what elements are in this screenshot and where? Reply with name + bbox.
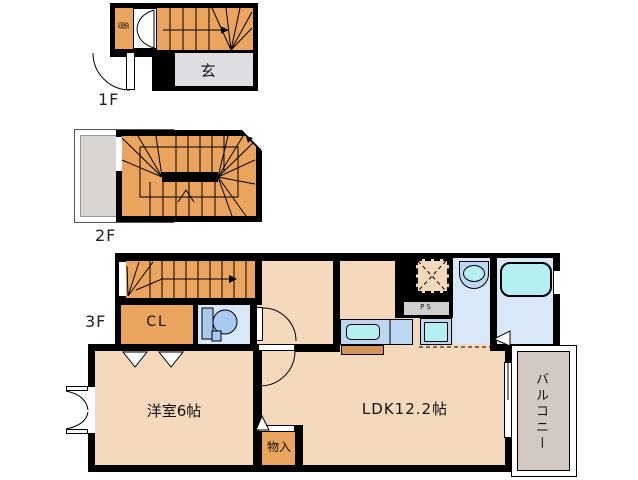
bifold-door-icon	[133, 8, 157, 49]
western-room-label: 洋室6帖	[95, 400, 253, 421]
casement-arcs-icon	[66, 391, 88, 429]
window-stairs-3f-icon	[119, 262, 126, 296]
ldk-door-leaf-icon	[258, 344, 295, 351]
washbasin-bowl-icon	[463, 265, 485, 282]
hall-upper	[262, 261, 333, 305]
pipe-space-label: PS	[404, 303, 449, 311]
bathtub-icon	[500, 262, 552, 297]
window-western-icon	[88, 387, 95, 433]
washer-icon	[424, 322, 448, 342]
casement-leaf-top-icon	[66, 386, 88, 391]
casement-leaf-bottom-icon	[66, 429, 88, 434]
toilet-room	[198, 305, 250, 344]
floor-label-1f: 1F	[98, 90, 119, 109]
closet-label: CL	[121, 314, 193, 330]
monoire-door-icon	[258, 425, 295, 432]
floor-label-3f: 3F	[85, 312, 106, 331]
kitchen-cabinet-icon	[341, 345, 384, 355]
entrance-label: 玄	[178, 60, 238, 81]
staircase-1f-icon	[157, 8, 253, 50]
refrigerator-space	[416, 259, 449, 293]
monoire-label: 物入	[261, 438, 297, 455]
staircase-3f-icon	[126, 261, 255, 298]
toilet-door-leaf-icon	[256, 307, 263, 341]
floor-plan-canvas: 収納 玄 1F 2F PS CL	[0, 0, 638, 480]
window-bath-icon	[554, 271, 560, 294]
kitchen-sink-icon	[346, 324, 380, 340]
stair-center-wall	[162, 172, 218, 182]
floor-label-2f: 2F	[95, 226, 116, 245]
hall-mid	[257, 305, 333, 344]
balcony-label: バルコニー	[531, 357, 550, 467]
storage-1f-label: 収納	[115, 21, 132, 31]
wall-ldk-door-stub	[295, 344, 340, 352]
window-2f-icon	[116, 137, 122, 171]
ldk-label: LDK12.2帖	[295, 398, 515, 419]
entrance-door-leaf-icon	[126, 52, 135, 90]
